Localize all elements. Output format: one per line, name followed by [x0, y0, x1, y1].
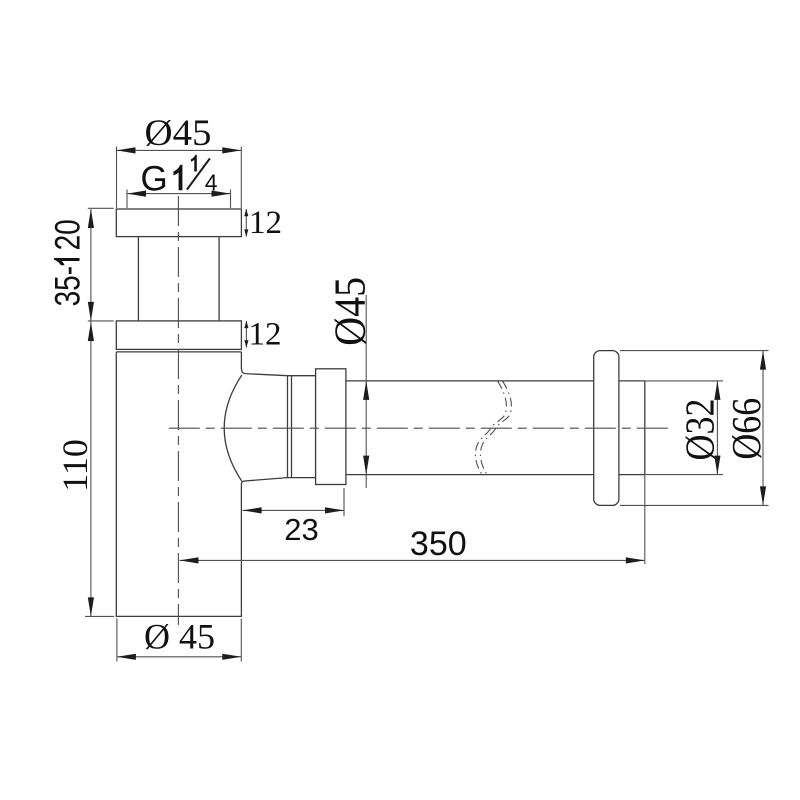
svg-text:350: 350: [410, 525, 467, 563]
svg-text:12: 12: [249, 205, 282, 241]
svg-text:Ø45: Ø45: [327, 277, 375, 346]
svg-text:4: 4: [205, 169, 218, 195]
svg-text:35-: 35-: [47, 266, 87, 306]
svg-text:Ø66: Ø66: [724, 398, 770, 460]
svg-text:Ø32: Ø32: [677, 399, 723, 461]
svg-text:Ø45: Ø45: [145, 113, 212, 154]
svg-text:23: 23: [284, 512, 318, 547]
svg-text:Ø 45: Ø 45: [144, 617, 215, 657]
svg-text:G: G: [141, 159, 168, 198]
svg-text:12: 12: [249, 317, 282, 353]
svg-text:110: 110: [55, 439, 95, 492]
svg-text:20: 20: [47, 219, 87, 250]
